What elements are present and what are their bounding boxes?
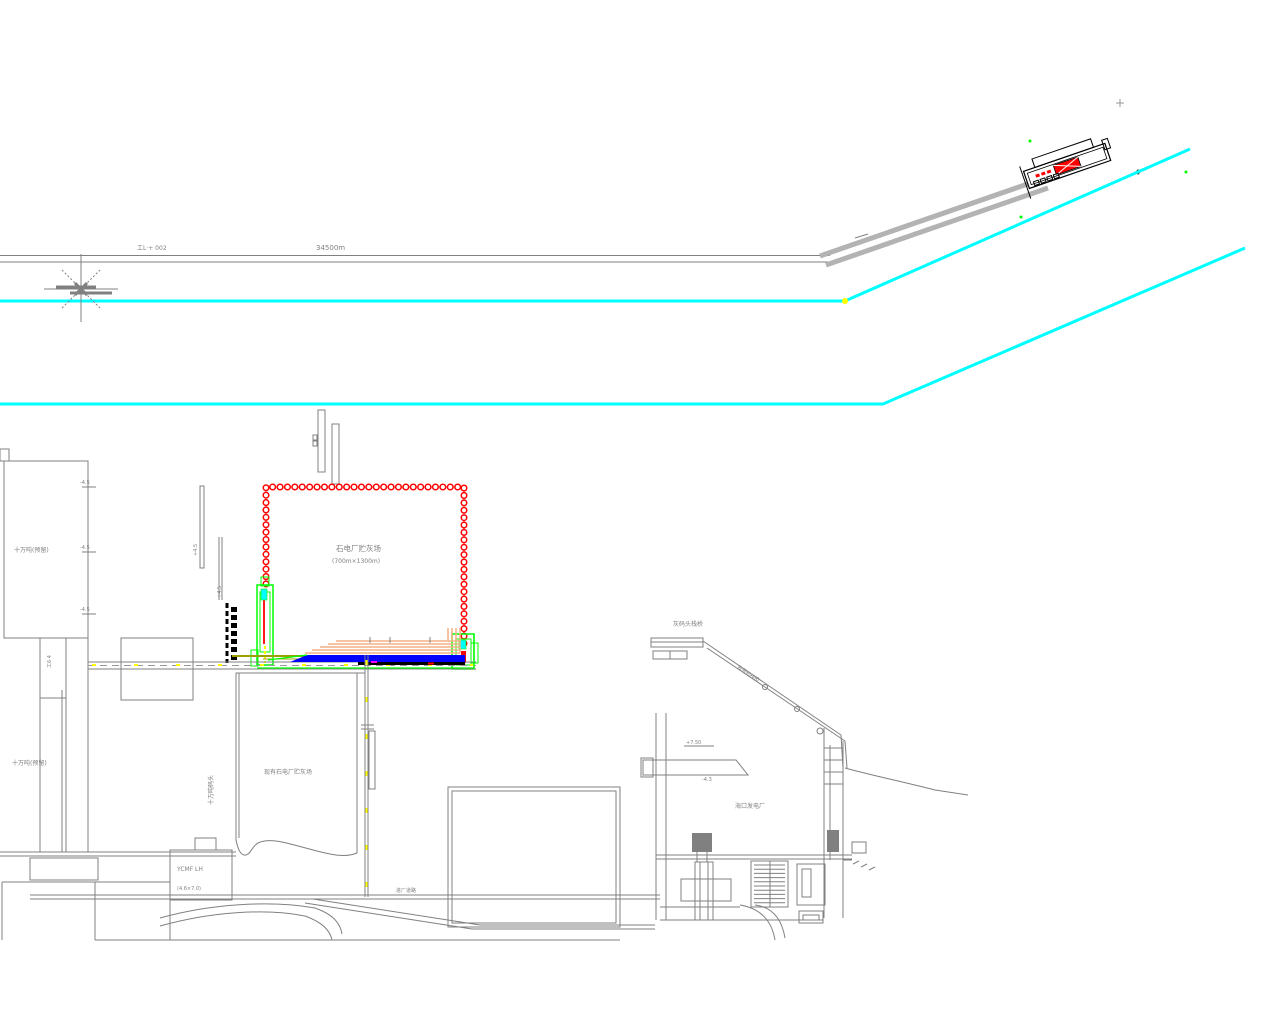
coastline-cyan-upper: [0, 149, 1190, 304]
elevation-label: -4.3: [702, 777, 712, 783]
existing-ash-yard-label: 现有石电厂贮灰场: [264, 768, 312, 776]
survey-note-label: 工L·+ 002: [137, 245, 167, 252]
edge-tick-label: -4.5: [80, 480, 90, 486]
elevation-label: +7.50: [686, 740, 701, 746]
wharf-area-label: 灰码头栈桥: [673, 620, 703, 628]
pipe-bundle-peach: [305, 628, 460, 653]
pile-boundary: [266, 487, 464, 649]
plant-west-boundary: [656, 713, 666, 920]
revetment-conveyor: [703, 641, 847, 768]
approach-trestle: [820, 179, 1048, 265]
green-point-marker: [1020, 216, 1023, 219]
jetty-arm: [641, 746, 748, 777]
bend-vertex-marker: [842, 298, 848, 304]
magenta-marker: [371, 661, 377, 663]
coastline-contour: [845, 768, 968, 795]
green-point-marker: [1185, 171, 1188, 174]
edge-tick-label: -4.5: [80, 607, 90, 613]
berth-lower-label: 十万吨(预留): [12, 759, 47, 767]
berth-upper-label: 十万吨(预留): [14, 546, 49, 554]
planned-area-rectangle: [448, 787, 620, 927]
quay-mark-label: +4.5: [193, 544, 199, 556]
access-roads: [30, 895, 660, 929]
green-point-marker: [1029, 140, 1032, 143]
conveyor-label: 胶带机栈桥: [736, 664, 761, 684]
cad-drawing-canvas[interactable]: 工L·+ 002 34500m -4.5 -4.5 -4.5 十万吨(预留) 工…: [0, 0, 1280, 1024]
new-ash-yard-size: (700m×1300m): [332, 558, 380, 565]
power-plant-complex: [656, 833, 875, 940]
pump-house-building: [170, 850, 232, 900]
quay-mark-label: +4.5: [217, 586, 223, 598]
intake-structure-left: [251, 577, 273, 666]
building-size-label: (4.6×7.0): [177, 886, 201, 892]
dock-vertical-label: 工6·4: [47, 655, 53, 668]
existing-ash-yard: [236, 673, 365, 855]
new-ash-yard-name: 石电厂贮灰场: [336, 543, 381, 553]
distance-label: 34500m: [316, 244, 345, 252]
road-label: 进厂道路: [396, 887, 416, 894]
edge-tick-label: -4.5: [80, 545, 90, 551]
plant-name-label: 海口发电厂: [735, 802, 765, 810]
outfall-piers: [313, 410, 339, 484]
reserved-berth-lower: [40, 638, 193, 852]
graphic-scale-bar: [227, 603, 234, 663]
conveyor-gallery: [824, 728, 843, 918]
north-arrow: [44, 254, 118, 322]
building-code-label: YCMF LH: [176, 866, 203, 873]
shore-road-lines: [0, 256, 830, 263]
finger-pier: [200, 486, 222, 600]
pier-vertical-label: 十万吨码头: [207, 775, 215, 805]
coastline-cyan-lower: [0, 248, 1245, 404]
pipe-supports: [370, 637, 430, 643]
yard-east-boundary: [361, 655, 375, 897]
coal-wharf-platform: [651, 638, 703, 659]
